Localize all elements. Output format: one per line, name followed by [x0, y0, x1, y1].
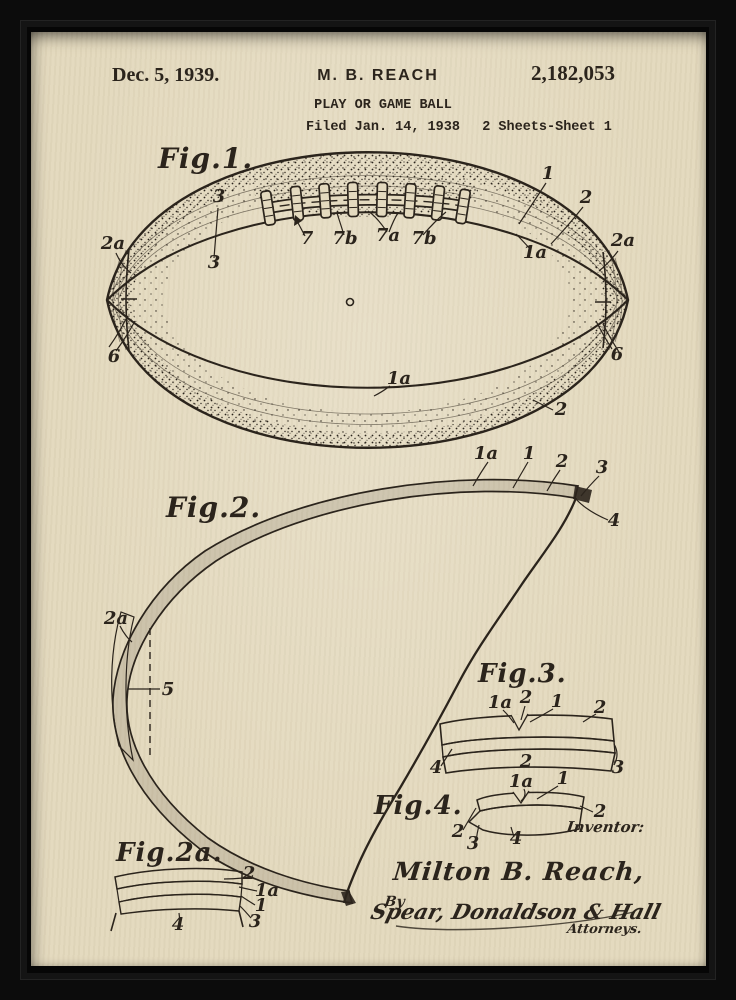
patent-drawing: Dec. 5, 1939. M. B. REACH 2,182,053 PLAY…	[0, 0, 736, 1000]
fig4-callout-1a: 1a	[509, 771, 533, 792]
fig1-callout-1a-right: 1a	[523, 242, 547, 263]
inventor-signature-name: Milton B. Reach,	[391, 856, 646, 886]
fig3-callout-2-right: 2	[593, 697, 607, 718]
fig1-callout-3-top: 3	[213, 186, 226, 207]
fig2-callout-2a: 2a	[103, 608, 128, 629]
fig3-callout-3: 3	[612, 757, 625, 778]
patent-number: 2,182,053	[531, 61, 615, 85]
fig3-section-detail: Fig.3. 1a 2 1 2 4 2 3	[430, 659, 625, 778]
fig2-bladder-line	[344, 498, 576, 903]
fig2-label: Fig.2.	[165, 491, 261, 524]
fig1-callout-2-bottom: 2	[554, 399, 568, 420]
attorneys-label: Attorneys.	[564, 922, 643, 937]
fig1-callout-6-right: 6	[611, 344, 624, 365]
sheet-info: 2 Sheets-Sheet 1	[482, 120, 612, 135]
framed-patent-poster: Dec. 5, 1939. M. B. REACH 2,182,053 PLAY…	[0, 0, 736, 1000]
fig2a-callout-2: 2	[242, 863, 256, 884]
patent-date: Dec. 5, 1939.	[112, 64, 219, 86]
fig2a-section-detail: Fig.2a. 2 1a 1 3 4	[111, 838, 279, 935]
inventor-initials: M. B. REACH	[317, 67, 439, 84]
fig2-callout-2: 2	[555, 451, 569, 472]
fig1-callout-7b-right: 7b	[411, 228, 436, 249]
fig2a-leader-lines	[179, 878, 257, 922]
fig2-callout-1a: 1a	[474, 443, 498, 464]
fig1-callout-7: 7	[301, 228, 314, 249]
fig2-callout-1: 1	[523, 443, 536, 464]
football-tip-lines	[121, 250, 611, 350]
fig1-callout-2a-left: 2a	[100, 233, 125, 254]
fig2-callout-3: 3	[596, 457, 609, 478]
fig2a-callout-3: 3	[249, 911, 262, 932]
fig1-callout-6-left: 6	[108, 346, 121, 367]
fig1-football-drawing: Fig.1.	[100, 142, 635, 448]
fig2a-callout-4: 4	[172, 914, 185, 935]
fig4-callout-2-left: 2	[451, 821, 465, 842]
fig2-callout-5: 5	[162, 679, 175, 700]
fig1-callout-1: 1	[542, 163, 555, 184]
fig2a-label: Fig.2a.	[115, 838, 223, 868]
fig4-section-detail: Fig.4. 1a 1 2 2 3 4	[373, 768, 606, 854]
fig3-label: Fig.3.	[477, 659, 567, 689]
fig3-callout-1a: 1a	[488, 692, 512, 713]
patent-title: PLAY OR GAME BALL	[314, 98, 452, 113]
fig4-callout-1: 1	[557, 768, 570, 789]
fig4-label: Fig.4.	[373, 791, 463, 821]
fig4-bottom-layer	[469, 805, 582, 835]
fig4-callout-4: 4	[510, 828, 523, 849]
fig4-notch-fill	[513, 791, 529, 803]
fig3-callout-2-mid: 2	[519, 751, 533, 772]
fig1-callout-1a-bottom: 1a	[387, 368, 411, 389]
football-center-dot	[347, 299, 354, 306]
fig1-callout-7a: 7a	[376, 225, 400, 246]
fig2-callout-4: 4	[608, 510, 621, 531]
fig4-callout-3: 3	[467, 833, 480, 854]
patent-header: Dec. 5, 1939. M. B. REACH 2,182,053 PLAY…	[112, 61, 615, 135]
inventor-label: Inventor:	[564, 818, 645, 836]
fig2a-bottom-layer	[119, 894, 241, 914]
fig1-callout-2: 2	[579, 187, 593, 208]
fig1-callout-3: 3	[208, 252, 221, 273]
fig1-label: Fig.1.	[157, 142, 253, 175]
filed-date: Filed Jan. 14, 1938	[306, 120, 460, 135]
fig3-callout-1: 1	[551, 691, 564, 712]
fig1-callout-2a-right: 2a	[610, 230, 635, 251]
fig1-callout-7b-left: 7b	[332, 228, 357, 249]
fig3-callout-4: 4	[430, 757, 443, 778]
fig3-callout-2-top: 2	[519, 687, 533, 708]
